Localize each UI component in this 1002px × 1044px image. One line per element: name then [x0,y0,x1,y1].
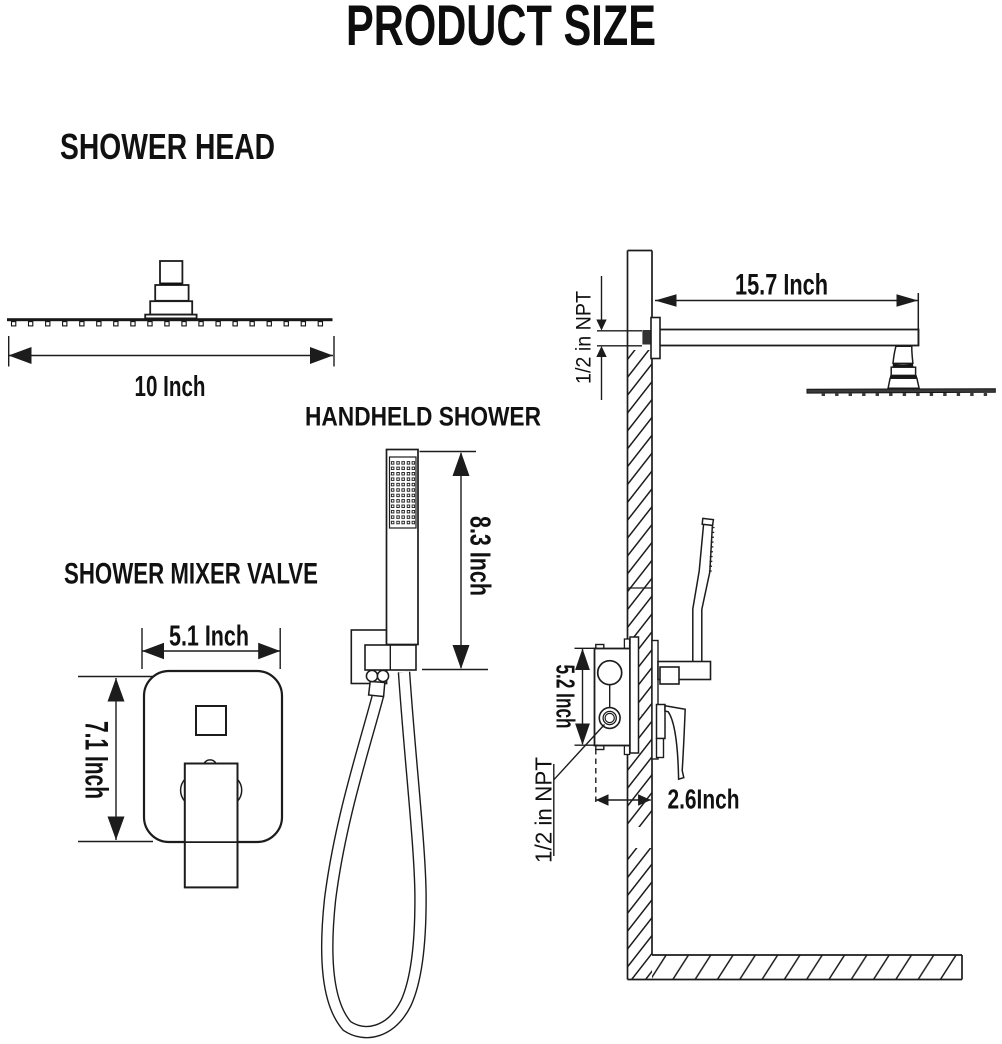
svg-text:SHOWER MIXER VALVE: SHOWER MIXER VALVE [64,558,318,591]
svg-text:8.3 Inch: 8.3 Inch [464,516,496,596]
svg-text:SHOWER HEAD: SHOWER HEAD [60,126,275,167]
svg-text:5.1 Inch: 5.1 Inch [169,621,249,653]
svg-text:7.1 Inch: 7.1 Inch [79,721,115,799]
svg-text:HANDHELD SHOWER: HANDHELD SHOWER [305,402,541,432]
svg-text:1/2 in NPT: 1/2 in NPT [531,757,557,863]
svg-text:PRODUCT SIZE: PRODUCT SIZE [346,0,656,58]
svg-text:15.7 Inch: 15.7 Inch [735,269,828,302]
svg-text:2.6Inch: 2.6Inch [668,784,740,815]
svg-text:1/2 in NPT: 1/2 in NPT [573,291,596,384]
svg-text:10 Inch: 10 Inch [135,371,206,403]
svg-text:5.2 Inch: 5.2 Inch [551,665,579,729]
